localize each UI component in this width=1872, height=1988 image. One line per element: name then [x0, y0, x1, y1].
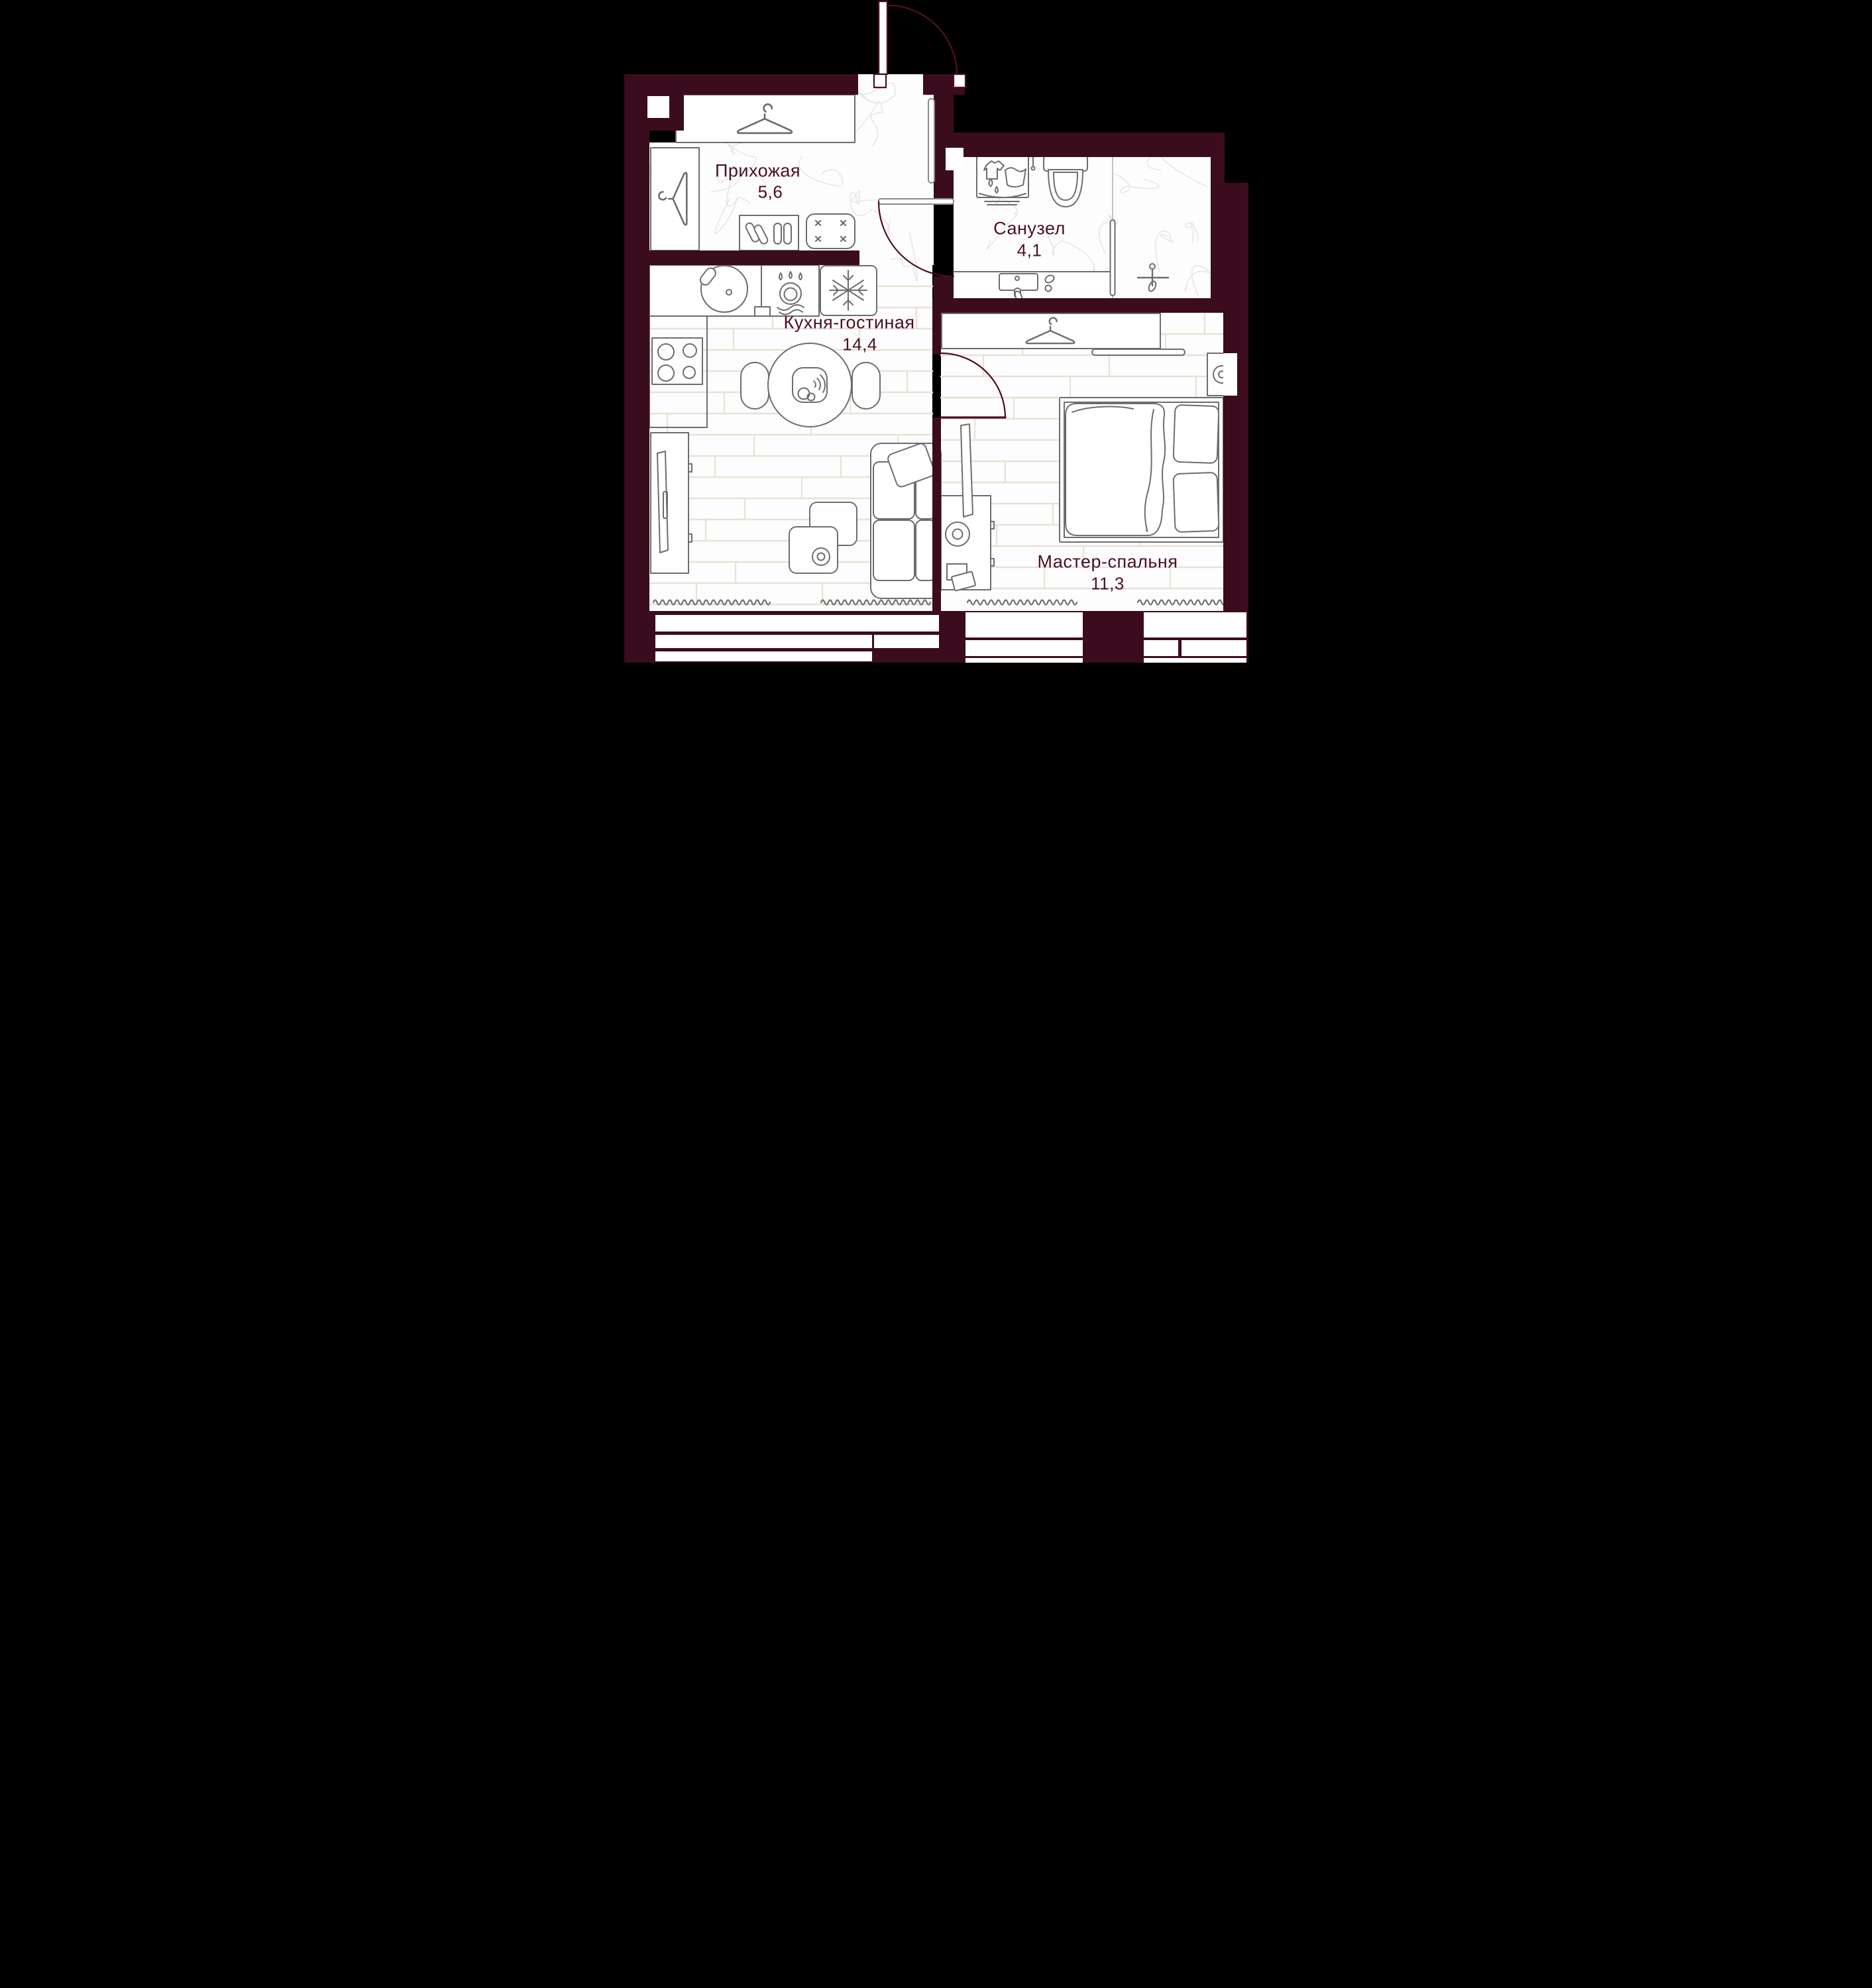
- shaft-niche-left: [647, 96, 669, 118]
- entry-threshold: [858, 74, 923, 95]
- wall-right-mid: [1211, 183, 1248, 298]
- bathroom-label: Санузел: [993, 220, 1066, 238]
- shower-door: [1110, 220, 1115, 296]
- shoe-cabinet: [740, 215, 798, 250]
- sofa: [871, 442, 941, 598]
- pouf: [806, 214, 855, 248]
- wall-bath-left-lower: [934, 276, 954, 298]
- bed: [1060, 398, 1223, 542]
- floor-plan-stage: Прихожая 5,6 Санузел 4,1 Кухня-гостиная …: [624, 0, 1248, 663]
- kitchen-living-area: 14,4: [842, 336, 877, 354]
- tv-console-living: [651, 433, 692, 573]
- dining-chair-right: [852, 362, 880, 409]
- hallway-area: 5,6: [758, 184, 783, 201]
- wall-divider-lower: [932, 417, 941, 611]
- door-leaf: [879, 199, 954, 204]
- wall-left: [624, 95, 649, 611]
- bedroom-wardrobe: [942, 313, 1185, 355]
- wardrobe-rail: [1092, 349, 1185, 355]
- shaft-niche-center: [946, 148, 964, 170]
- kitchen-living-label: Кухня-гостиная: [783, 314, 914, 332]
- coat-closet: [676, 95, 855, 142]
- hallway-label: Прихожая: [715, 162, 800, 180]
- washing-machine: [977, 155, 1028, 205]
- parked-door-leaf: [928, 99, 934, 183]
- bed-pillow: [1173, 472, 1219, 532]
- wall-bedroom-top: [941, 298, 1248, 313]
- bed-pillow: [1173, 405, 1219, 463]
- wall-top-left: [624, 74, 858, 95]
- dining-chair-left: [741, 362, 769, 409]
- nightstand-niche: [1223, 353, 1237, 396]
- wall-hallway-bottom: [649, 250, 859, 265]
- master-bedroom-area: 11,3: [1091, 575, 1125, 593]
- bathroom-vanity: [954, 272, 1113, 302]
- hall-wardrobe: [651, 148, 699, 250]
- wall-bath-top: [934, 133, 1211, 157]
- duvet: [1066, 404, 1165, 535]
- master-bedroom-label: Мастер-спальня: [1038, 553, 1178, 571]
- wall-right-upper: [1211, 133, 1225, 183]
- dining-table: [768, 343, 852, 427]
- wall-divider-upper: [932, 298, 941, 355]
- door-jamb: [954, 74, 965, 87]
- door-jamb: [874, 74, 886, 87]
- bathroom-area: 4,1: [1017, 242, 1042, 260]
- hallway-corridor-floor: [855, 74, 934, 265]
